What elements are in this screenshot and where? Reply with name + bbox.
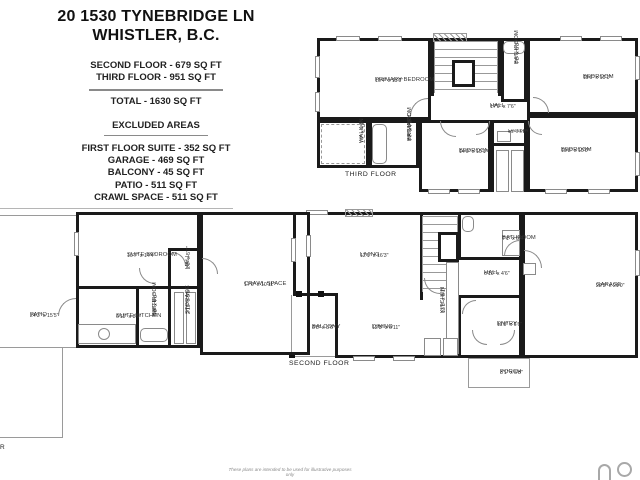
wall-segment [461,257,522,260]
room-dims: 12'1" x 16'3" [360,253,388,260]
window-marker [336,36,360,41]
outdoor-outline [0,348,63,438]
window-marker [428,189,450,194]
fixture-outline [424,338,441,356]
room-dims: 7'1" x 5'4" [502,236,525,243]
window-marker [306,235,311,257]
room-dims: 11'6" x 10'1" [583,75,611,82]
room-dims: 10'7" x 14'4" [127,253,155,260]
fixture-outline [496,150,509,192]
room-dims: 7'5" x 5'3" [515,41,522,64]
room-dims: 2'10" x 9'5" [186,288,193,314]
bath-fixture [140,328,168,342]
fixture-outline [511,150,524,192]
bath-fixture [462,216,474,232]
window-marker [560,36,582,41]
wall-segment [491,146,494,192]
window-marker [378,36,402,41]
room-dims: 12'8" x 6'11" [372,325,400,332]
room-dims: 17'9" x 7'6" [490,104,516,111]
room-dims: 13'8" x 8'1" [441,287,448,313]
room-dims: 24'3" x 15'5" [30,313,58,320]
wall-segment [524,146,527,192]
window-marker [600,36,622,41]
window-marker [635,250,640,276]
room-dims: 22'3" x 21'0" [596,283,624,290]
room-dims: 5'0" x 7'6" [153,293,160,316]
window-marker [393,356,415,361]
window-marker [545,189,567,194]
window-marker [635,152,640,176]
stair-landing-box [452,60,475,87]
fixture-outline [174,292,184,344]
room-dims: 10'8" x 10'0" [561,148,589,155]
brand-logo-circle-icon [617,462,632,477]
railing-line [0,208,233,209]
room-outline [293,212,522,296]
room-name: THIRD FLOOR [345,171,397,178]
room-dims: 2'9" x 5'7" [186,246,193,269]
window-marker [353,356,375,361]
floor-plans-canvas: PRIMARY BEDROOM16'4" x 11'0"WALK-IN7'7" … [0,0,640,480]
room-dims: 14'0" x 10'1" [459,149,487,156]
room-dims: 11'8" x 6'6" [497,322,522,329]
floorplan-page: 20 1530 TYNEBRIDGE LN WHISTLER, B.C. SEC… [0,0,640,480]
window-marker [588,189,610,194]
room-dims: 7'7" x 7'2" [408,118,415,141]
room-dims: 17'6" x 10'11" [244,282,275,289]
wall-segment [168,248,200,251]
room-dims: 4'5" x 4'1" [508,129,526,134]
vent-hatch [345,209,373,217]
room-dims: 6'11" x 8'0" [116,314,141,321]
railing-post [318,291,324,297]
room-dims: 7'7" x 4'9" [360,120,367,143]
room-dims: 8'5" x 5'6" [312,325,335,332]
room-dims: 8'1" x 5'8" [500,370,523,377]
window-marker [315,92,320,112]
sink-circle [98,328,110,340]
outdoor-outline [0,215,76,348]
window-marker [458,189,480,194]
room-dims: 16'4" x 11'0" [375,78,403,85]
window-marker [315,56,320,78]
wall-segment [168,286,200,289]
room-dims: 6'10" x 4'6" [484,271,510,278]
window-marker [74,232,79,256]
window-marker [635,56,640,80]
wall-segment [461,295,522,298]
brand-logo-arch-icon [598,464,611,480]
wall-segment [168,248,171,348]
cutoff-floor-label-fragment: R [0,444,5,451]
fixture-outline [443,338,458,356]
bath-fixture [372,124,387,164]
room-name: SECOND FLOOR [289,360,349,367]
disclaimer-text: These plans are intended to be used for … [225,467,355,477]
stair-landing-box [438,232,459,262]
